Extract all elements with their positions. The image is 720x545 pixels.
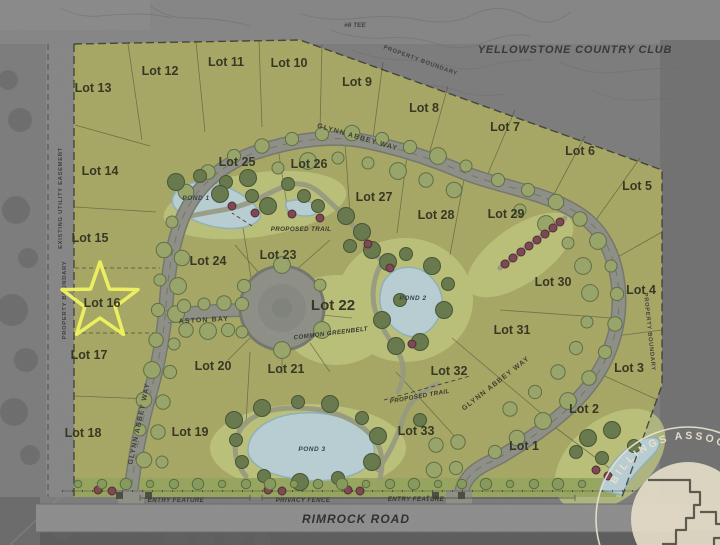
street-tree-icon — [598, 345, 611, 358]
lot-4-label: Lot 4 — [626, 283, 656, 297]
landscape-tree-icon — [580, 430, 597, 447]
street-tree-icon — [237, 279, 250, 292]
street-tree-icon — [272, 162, 284, 174]
landscape-tree-icon — [424, 258, 441, 275]
landscape-tree-icon — [338, 208, 355, 225]
street-tree-icon — [610, 287, 623, 300]
landscape-tree-icon — [436, 302, 453, 319]
hedge-bush-icon — [362, 480, 370, 488]
entry-feature-right-label: ENTRY FEATURE — [388, 496, 445, 503]
landscape-tree-icon — [354, 224, 371, 241]
shrub-icon — [517, 248, 525, 256]
proposed-trail-upper-label: PROPOSED TRAIL — [271, 226, 332, 233]
lot-17-label: Lot 17 — [71, 348, 108, 362]
street-tree-icon — [136, 452, 152, 468]
street-tree-icon — [491, 173, 504, 186]
landscape-tree-icon — [254, 400, 271, 417]
street-tree-icon — [562, 237, 574, 249]
street-tree-icon — [151, 425, 165, 439]
lot-21-label: Lot 21 — [268, 362, 305, 376]
landscape-tree-icon — [298, 190, 311, 203]
street-tree-icon — [166, 216, 178, 228]
shrub-icon — [278, 487, 286, 495]
hedge-bush-icon — [264, 478, 276, 490]
street-tree-icon — [314, 279, 326, 291]
lot-16-label: Lot 16 — [84, 296, 121, 310]
street-tree-icon — [521, 183, 534, 196]
shrub-icon — [533, 236, 541, 244]
street-tree-icon — [419, 173, 433, 187]
hedge-bush-icon — [480, 478, 492, 490]
street-tree-icon — [449, 461, 462, 474]
lot-28-label: Lot 28 — [418, 208, 455, 222]
lot-32-label: Lot 32 — [431, 364, 468, 378]
shrub-icon — [108, 487, 116, 495]
lot-29-label: Lot 29 — [488, 207, 525, 221]
landscape-tree-icon — [596, 452, 609, 465]
shrub-icon — [408, 340, 416, 348]
shrub-icon — [556, 218, 564, 226]
street-tree-icon — [274, 342, 291, 359]
shrub-icon — [364, 240, 372, 248]
landscape-tree-icon — [604, 422, 621, 439]
street-tree-icon — [198, 298, 210, 310]
street-tree-icon — [575, 258, 592, 275]
street-tree-icon — [535, 413, 552, 430]
hedge-bush-icon — [434, 480, 442, 488]
lot-18-label: Lot 18 — [65, 426, 102, 440]
lot-15-label: Lot 15 — [72, 231, 109, 245]
lot-5-label: Lot 5 — [622, 179, 652, 193]
lot-8-label: Lot 8 — [409, 101, 439, 115]
landscape-tree-icon — [374, 312, 391, 329]
street-tree-icon — [403, 140, 416, 153]
landscape-tree-icon — [212, 186, 229, 203]
street-tree-icon — [144, 362, 161, 379]
lot-22-label: Lot 22 — [311, 297, 355, 314]
pond-2-label: POND 2 — [399, 295, 426, 302]
hedge-bush-icon — [241, 479, 251, 489]
street-tree-icon — [156, 242, 172, 258]
street-tree-icon — [177, 299, 190, 312]
hedge-bush-icon — [192, 478, 204, 490]
lot-20-label: Lot 20 — [195, 359, 232, 373]
street-tree-icon — [362, 157, 374, 169]
shrub-icon — [525, 242, 533, 250]
existing-utility-easement-label: EXISTING UTILITY EASEMENT — [58, 147, 64, 249]
lot-33-label: Lot 33 — [398, 424, 435, 438]
street-tree-icon — [156, 395, 170, 409]
street-tree-icon — [149, 333, 163, 347]
shrub-icon — [251, 209, 259, 217]
landscape-tree-icon — [230, 434, 243, 447]
street-tree-icon — [174, 250, 190, 266]
shrub-icon — [549, 224, 557, 232]
hedge-bush-icon — [385, 479, 395, 489]
landscape-tree-icon — [364, 454, 381, 471]
landscape-tree-icon — [282, 178, 295, 191]
landscape-tree-icon — [400, 248, 413, 261]
lot-3-label: Lot 3 — [614, 361, 644, 375]
street-tree-icon — [168, 338, 180, 350]
street-tree-icon — [446, 182, 462, 198]
lot-6-label: Lot 6 — [565, 144, 595, 158]
shrub-icon — [316, 214, 324, 222]
shrub-icon — [509, 254, 517, 262]
lot-12-label: Lot 12 — [142, 64, 179, 78]
street-tree-icon — [426, 462, 442, 478]
street-tree-icon — [605, 260, 617, 272]
street-tree-icon — [154, 274, 166, 286]
street-tree-icon — [451, 435, 465, 449]
street-tree-icon — [429, 438, 443, 452]
street-tree-icon — [528, 385, 541, 398]
yellowstone-country-club-label: YELLOWSTONE COUNTRY CLUB — [478, 44, 673, 56]
lot-23-label: Lot 23 — [260, 248, 297, 262]
street-tree-icon — [548, 194, 564, 210]
lot-1-label: Lot 1 — [509, 439, 539, 453]
lot-13-label: Lot 13 — [75, 81, 112, 95]
shrub-icon — [501, 260, 509, 268]
hedge-bush-icon — [578, 480, 586, 488]
lot-14-label: Lot 14 — [82, 164, 119, 178]
lot-7-label: Lot 7 — [490, 120, 520, 134]
landscape-tree-icon — [260, 198, 277, 215]
hedge-bush-icon — [120, 478, 132, 490]
entry-feature-left-label: ENTRY FEATURE — [148, 497, 205, 504]
shrub-icon — [356, 487, 364, 495]
landscape-tree-icon — [322, 396, 339, 413]
street-tree-icon — [551, 365, 565, 379]
hedge-bush-icon — [313, 479, 323, 489]
street-tree-icon — [590, 233, 607, 250]
hedge-bush-icon — [529, 479, 539, 489]
hedge-bush-icon — [457, 479, 467, 489]
hedge-bush-icon — [146, 480, 154, 488]
landscape-tree-icon — [344, 240, 357, 253]
street-tree-icon — [170, 278, 187, 295]
plat-map: YELLOWSTONE COUNTRY CLUB #6 TEE RIMROCK … — [0, 0, 720, 545]
street-tree-icon — [285, 132, 298, 145]
shrub-icon — [592, 466, 600, 474]
hedge-bush-icon — [218, 480, 226, 488]
shrub-icon — [228, 202, 236, 210]
hedge-bush-icon — [97, 479, 107, 489]
hedge-bush-icon — [506, 480, 514, 488]
property-boundary-left-label: PROPERTY BOUNDARY — [62, 261, 68, 340]
street-tree-icon — [582, 371, 596, 385]
hedge-bush-icon — [552, 478, 564, 490]
landscape-tree-icon — [292, 396, 305, 409]
pond-1-label: POND 1 — [182, 195, 209, 202]
landscape-tree-icon — [312, 200, 325, 213]
lot-25-label: Lot 25 — [219, 155, 256, 169]
street-tree-icon — [569, 341, 582, 354]
hedge-bush-icon — [169, 479, 179, 489]
lot-9-label: Lot 9 — [342, 75, 372, 89]
landscape-tree-icon — [370, 428, 387, 445]
street-tree-icon — [390, 163, 407, 180]
street-tree-icon — [460, 160, 472, 172]
street-tree-icon — [221, 323, 234, 336]
hedge-bush-icon — [74, 480, 82, 488]
landscape-tree-icon — [168, 174, 185, 191]
street-tree-icon — [255, 139, 269, 153]
street-tree-icon — [163, 365, 176, 378]
hedge-bush-icon — [408, 478, 420, 490]
street-tree-icon — [200, 323, 217, 340]
landscape-tree-icon — [240, 170, 257, 187]
street-tree-icon — [217, 296, 231, 310]
street-tree-icon — [430, 148, 447, 165]
landscape-tree-icon — [246, 190, 259, 203]
lot-27-label: Lot 27 — [356, 190, 393, 204]
lot-31-label: Lot 31 — [494, 323, 531, 337]
street-tree-icon — [236, 326, 248, 338]
street-tree-icon — [488, 445, 501, 458]
street-tree-icon — [332, 152, 344, 164]
hedge-bush-icon — [336, 478, 348, 490]
lot-24-label: Lot 24 — [190, 254, 227, 268]
lot-2-label: Lot 2 — [569, 402, 599, 416]
landscape-tree-icon — [194, 170, 207, 183]
landscape-tree-icon — [356, 412, 369, 425]
lot-11-label: Lot 11 — [208, 55, 244, 69]
hedge-bush-icon — [290, 480, 298, 488]
street-tree-icon — [582, 285, 599, 302]
rimrock-road-label: RIMROCK ROAD — [302, 512, 410, 526]
shrub-icon — [288, 210, 296, 218]
street-tree-icon — [156, 456, 168, 468]
lot-10-label: Lot 10 — [271, 56, 308, 70]
street-tree-icon — [581, 316, 593, 328]
landscape-tree-icon — [226, 412, 243, 429]
lot-19-label: Lot 19 — [172, 425, 209, 439]
shrub-icon — [541, 230, 549, 238]
lot-30-label: Lot 30 — [535, 275, 572, 289]
street-tree-icon — [573, 212, 587, 226]
landscape-tree-icon — [388, 338, 405, 355]
landscape-tree-icon — [570, 446, 583, 459]
landscape-tree-icon — [236, 456, 249, 469]
street-tree-icon — [608, 317, 622, 331]
street-tree-icon — [151, 303, 164, 316]
tee-label: #6 TEE — [344, 22, 366, 29]
street-tree-icon — [235, 297, 248, 310]
landscape-tree-icon — [442, 278, 455, 291]
street-tree-icon — [503, 402, 517, 416]
privacy-fence-label: PRIVACY FENCE — [276, 497, 331, 504]
site-plan-svg: YELLOWSTONE COUNTRY CLUB #6 TEE RIMROCK … — [0, 0, 720, 545]
pond-3-label: POND 3 — [298, 446, 325, 453]
shrub-icon — [386, 264, 394, 272]
lot-26-label: Lot 26 — [291, 157, 328, 171]
